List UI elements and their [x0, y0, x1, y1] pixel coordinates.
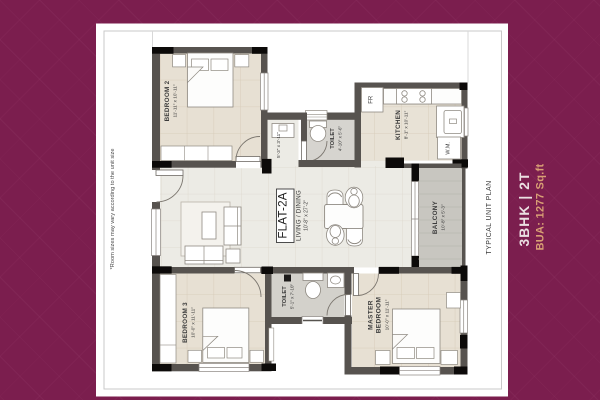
svg-text:*Room sizes may vary according: *Room sizes may vary according to the un…: [110, 148, 116, 269]
svg-text:BUA: 1277 Sq.ft: BUA: 1277 Sq.ft: [535, 163, 547, 250]
svg-text:4'-10" x 5'-6": 4'-10" x 5'-6": [338, 126, 343, 152]
svg-text:10'-8" x 5'-3": 10'-8" x 5'-3": [441, 204, 446, 231]
svg-text:TOILET: TOILET: [330, 128, 336, 149]
svg-text:BEDROOM: BEDROOM: [376, 297, 383, 334]
svg-text:FR: FR: [369, 95, 375, 104]
svg-text:BALCONY: BALCONY: [432, 200, 439, 234]
svg-text:KITCHEN: KITCHEN: [395, 110, 402, 140]
svg-text:8'-1" x 10'-11": 8'-1" x 10'-11": [404, 110, 409, 139]
svg-text:5'-3" x 3'-11": 5'-3" x 3'-11": [276, 132, 281, 158]
svg-text:BEDROOM 2: BEDROOM 2: [164, 80, 171, 121]
svg-text:5'-1" x 7'-10": 5'-1" x 7'-10": [290, 284, 295, 310]
svg-text:W.M.: W.M.: [446, 142, 452, 155]
svg-text:11'-11" x 10'-11": 11'-11" x 10'-11": [173, 84, 178, 117]
svg-text:FLAT-2A: FLAT-2A: [277, 192, 290, 238]
svg-text:10'-0" x 11'-11": 10'-0" x 11'-11": [385, 299, 390, 330]
svg-text:BEDROOM 3: BEDROOM 3: [182, 302, 189, 343]
svg-text:TOILET: TOILET: [282, 286, 288, 307]
svg-text:10'-0" x 11'-11": 10'-0" x 11'-11": [191, 307, 196, 338]
svg-text:3BHK | 2T: 3BHK | 2T: [517, 171, 532, 246]
svg-text:TYPICAL UNIT PLAN: TYPICAL UNIT PLAN: [486, 180, 493, 254]
svg-text:MASTER: MASTER: [368, 300, 375, 330]
svg-text:LIVING / DINING: LIVING / DINING: [296, 190, 303, 241]
svg-text:10'-8" x 27'-2": 10'-8" x 27'-2": [304, 200, 310, 231]
